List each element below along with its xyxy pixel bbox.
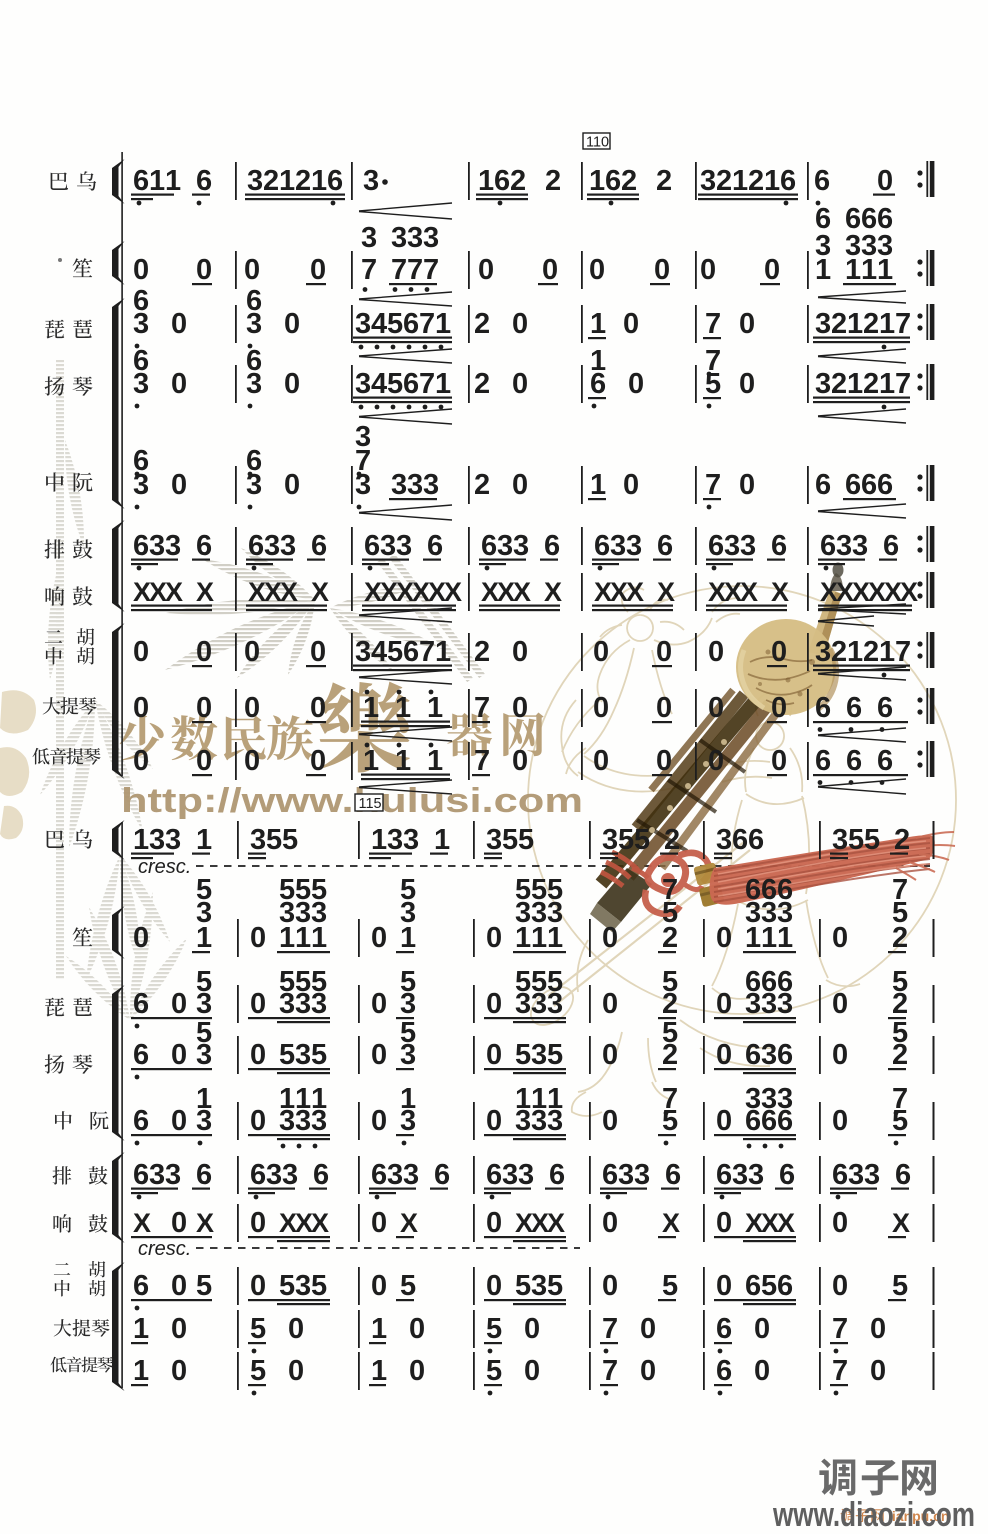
svg-text:5: 5 xyxy=(662,1017,678,1049)
svg-text:3: 3 xyxy=(815,636,831,668)
svg-text:3: 3 xyxy=(777,897,793,929)
svg-text:5: 5 xyxy=(279,966,295,998)
svg-text:5: 5 xyxy=(196,966,212,998)
svg-text:1: 1 xyxy=(400,1083,416,1115)
svg-text:5: 5 xyxy=(311,1270,327,1302)
svg-text:0: 0 xyxy=(640,1313,656,1345)
svg-text:0: 0 xyxy=(832,1207,848,1239)
svg-text:5: 5 xyxy=(547,1039,563,1071)
svg-text:7: 7 xyxy=(391,254,407,286)
svg-text:3: 3 xyxy=(852,530,868,562)
svg-text:3: 3 xyxy=(391,222,407,254)
svg-text:6: 6 xyxy=(594,530,610,562)
svg-text:1: 1 xyxy=(732,165,748,197)
svg-text:1: 1 xyxy=(531,1083,547,1115)
svg-text:6: 6 xyxy=(665,1159,681,1191)
svg-text:3: 3 xyxy=(877,230,893,262)
svg-text:0: 0 xyxy=(371,988,387,1020)
svg-text:3: 3 xyxy=(280,530,296,562)
svg-text:6: 6 xyxy=(832,1159,848,1191)
svg-text:0: 0 xyxy=(656,636,672,668)
svg-text:5: 5 xyxy=(547,966,563,998)
svg-text:6: 6 xyxy=(544,530,560,562)
svg-text:0: 0 xyxy=(196,745,212,777)
svg-text:0: 0 xyxy=(133,636,149,668)
svg-text:0: 0 xyxy=(512,636,528,668)
svg-text:6: 6 xyxy=(313,1159,329,1191)
svg-text:5: 5 xyxy=(295,966,311,998)
svg-text:0: 0 xyxy=(524,1313,540,1345)
svg-text:5: 5 xyxy=(531,966,547,998)
svg-text:3: 3 xyxy=(610,530,626,562)
svg-text:115: 115 xyxy=(359,796,382,812)
svg-text:0: 0 xyxy=(716,1105,732,1137)
svg-text:2: 2 xyxy=(748,165,764,197)
svg-text:7: 7 xyxy=(895,308,911,340)
svg-text:2: 2 xyxy=(831,636,847,668)
svg-text:6: 6 xyxy=(133,1270,149,1302)
svg-text:3: 3 xyxy=(740,530,756,562)
svg-text:1: 1 xyxy=(590,345,606,377)
svg-text:3: 3 xyxy=(279,897,295,929)
svg-text:1: 1 xyxy=(133,1355,149,1387)
svg-text:6: 6 xyxy=(716,1159,732,1191)
svg-text:1: 1 xyxy=(363,745,379,777)
svg-text:5: 5 xyxy=(848,824,864,856)
svg-text:5: 5 xyxy=(196,1017,212,1049)
svg-text:3: 3 xyxy=(815,308,831,340)
svg-text:6: 6 xyxy=(549,1159,565,1191)
svg-text:7: 7 xyxy=(419,308,435,340)
svg-text:0: 0 xyxy=(656,745,672,777)
svg-text:0: 0 xyxy=(593,636,609,668)
svg-text:2: 2 xyxy=(716,165,732,197)
svg-text:0: 0 xyxy=(486,1105,502,1137)
svg-text:0: 0 xyxy=(171,308,187,340)
svg-text:3: 3 xyxy=(355,636,371,668)
svg-text:1: 1 xyxy=(133,824,149,856)
svg-text:5: 5 xyxy=(892,897,908,929)
svg-text:3: 3 xyxy=(815,230,831,262)
svg-text:5: 5 xyxy=(864,824,880,856)
svg-text:3: 3 xyxy=(165,530,181,562)
svg-text:1: 1 xyxy=(427,745,443,777)
svg-text:6: 6 xyxy=(745,966,761,998)
svg-text:2: 2 xyxy=(474,469,490,501)
svg-text:1: 1 xyxy=(879,368,895,400)
svg-text:3: 3 xyxy=(745,1083,761,1115)
svg-text:0: 0 xyxy=(771,636,787,668)
svg-text:3: 3 xyxy=(165,824,181,856)
svg-text:3: 3 xyxy=(380,530,396,562)
svg-text:3: 3 xyxy=(363,165,379,197)
svg-text:6: 6 xyxy=(196,530,212,562)
svg-text:3: 3 xyxy=(423,469,439,501)
svg-text:0: 0 xyxy=(250,1105,266,1137)
svg-text:4: 4 xyxy=(371,368,387,400)
svg-text:2: 2 xyxy=(863,368,879,400)
svg-text:X: X xyxy=(311,577,329,607)
svg-text:4: 4 xyxy=(371,636,387,668)
svg-text:5: 5 xyxy=(515,966,531,998)
svg-text:5: 5 xyxy=(196,1270,212,1302)
svg-text:0: 0 xyxy=(171,1207,187,1239)
svg-text:0: 0 xyxy=(870,1355,886,1387)
svg-text:3: 3 xyxy=(391,469,407,501)
svg-text:6: 6 xyxy=(716,1355,732,1387)
svg-text:1: 1 xyxy=(590,469,606,501)
svg-text:0: 0 xyxy=(171,1270,187,1302)
svg-text:cresc.: cresc. xyxy=(138,1238,191,1260)
svg-text:6: 6 xyxy=(133,1159,149,1191)
svg-text:7: 7 xyxy=(602,1313,618,1345)
svg-text:7: 7 xyxy=(474,745,490,777)
svg-text:6: 6 xyxy=(250,1159,266,1191)
svg-text:0: 0 xyxy=(602,922,618,954)
svg-text:1: 1 xyxy=(547,1083,563,1115)
svg-text:3: 3 xyxy=(400,897,416,929)
svg-text:3: 3 xyxy=(387,824,403,856)
svg-text:6: 6 xyxy=(133,1039,149,1071)
svg-text:6: 6 xyxy=(246,345,262,377)
svg-text:0: 0 xyxy=(877,165,893,197)
svg-text:3: 3 xyxy=(634,1159,650,1191)
svg-text:4: 4 xyxy=(371,308,387,340)
svg-text:X: X xyxy=(900,577,918,607)
svg-text:6: 6 xyxy=(877,692,893,724)
svg-text:3: 3 xyxy=(518,1159,534,1191)
svg-text:1: 1 xyxy=(196,1083,212,1115)
svg-text:0: 0 xyxy=(656,692,672,724)
svg-text:6: 6 xyxy=(327,165,343,197)
svg-text:6: 6 xyxy=(403,368,419,400)
svg-text:1: 1 xyxy=(879,308,895,340)
svg-text:0: 0 xyxy=(589,254,605,286)
svg-text:X: X xyxy=(662,1208,680,1238)
svg-text:0: 0 xyxy=(593,692,609,724)
svg-text:6: 6 xyxy=(371,1159,387,1191)
svg-text:1: 1 xyxy=(435,368,451,400)
svg-text:1: 1 xyxy=(847,308,863,340)
svg-text:0: 0 xyxy=(310,636,326,668)
svg-text:3: 3 xyxy=(149,530,165,562)
svg-text:5: 5 xyxy=(387,636,403,668)
svg-text:6: 6 xyxy=(133,345,149,377)
svg-text:1: 1 xyxy=(363,692,379,724)
svg-text:5: 5 xyxy=(387,368,403,400)
svg-text:3: 3 xyxy=(700,165,716,197)
svg-text:1: 1 xyxy=(395,692,411,724)
svg-text:0: 0 xyxy=(764,254,780,286)
svg-text:6: 6 xyxy=(761,966,777,998)
svg-text:6: 6 xyxy=(883,530,899,562)
svg-text:X: X xyxy=(133,1208,151,1238)
svg-text:3: 3 xyxy=(832,824,848,856)
svg-text:3: 3 xyxy=(815,368,831,400)
svg-text:0: 0 xyxy=(171,988,187,1020)
svg-text:7: 7 xyxy=(705,308,721,340)
svg-text:5: 5 xyxy=(311,966,327,998)
svg-text:5: 5 xyxy=(486,1355,502,1387)
svg-text:5: 5 xyxy=(761,1270,777,1302)
svg-text:2: 2 xyxy=(664,824,680,856)
svg-text:2: 2 xyxy=(831,308,847,340)
svg-text:6: 6 xyxy=(133,285,149,317)
svg-text:6: 6 xyxy=(602,1159,618,1191)
svg-text:0: 0 xyxy=(171,469,187,501)
svg-text:3: 3 xyxy=(848,1159,864,1191)
svg-text:6: 6 xyxy=(481,530,497,562)
svg-text:3: 3 xyxy=(403,1159,419,1191)
svg-text:0: 0 xyxy=(171,1313,187,1345)
svg-text:0: 0 xyxy=(832,988,848,1020)
svg-text:0: 0 xyxy=(602,1207,618,1239)
svg-text:0: 0 xyxy=(478,254,494,286)
svg-text:0: 0 xyxy=(250,1270,266,1302)
svg-text:0: 0 xyxy=(832,1039,848,1071)
svg-text:2: 2 xyxy=(545,165,561,197)
svg-text:0: 0 xyxy=(371,922,387,954)
svg-text:5: 5 xyxy=(515,1270,531,1302)
svg-text:0: 0 xyxy=(623,308,639,340)
svg-text:6: 6 xyxy=(777,966,793,998)
svg-text:7: 7 xyxy=(705,469,721,501)
svg-text:5: 5 xyxy=(250,1355,266,1387)
svg-text:3: 3 xyxy=(845,230,861,262)
svg-text:0: 0 xyxy=(371,1039,387,1071)
svg-text:6: 6 xyxy=(133,165,149,197)
svg-text:6: 6 xyxy=(732,824,748,856)
svg-text:3: 3 xyxy=(407,222,423,254)
svg-text:1: 1 xyxy=(435,636,451,668)
svg-text:2: 2 xyxy=(863,636,879,668)
svg-text:0: 0 xyxy=(250,1207,266,1239)
svg-text:0: 0 xyxy=(171,1355,187,1387)
svg-text:3: 3 xyxy=(497,530,513,562)
svg-text:cresc.: cresc. xyxy=(138,856,191,878)
svg-text:3: 3 xyxy=(777,1083,793,1115)
svg-text:0: 0 xyxy=(250,922,266,954)
svg-text:3: 3 xyxy=(602,824,618,856)
svg-text:3: 3 xyxy=(250,824,266,856)
svg-text:0: 0 xyxy=(512,368,528,400)
svg-text:5: 5 xyxy=(279,1270,295,1302)
svg-text:6: 6 xyxy=(248,530,264,562)
svg-text:5: 5 xyxy=(634,824,650,856)
svg-text:1: 1 xyxy=(395,745,411,777)
svg-text:5: 5 xyxy=(892,1017,908,1049)
svg-text:3: 3 xyxy=(531,897,547,929)
svg-text:0: 0 xyxy=(196,692,212,724)
svg-text:0: 0 xyxy=(171,1105,187,1137)
svg-text:3: 3 xyxy=(282,1159,298,1191)
svg-text:3: 3 xyxy=(716,824,732,856)
svg-text:7: 7 xyxy=(895,636,911,668)
svg-text:3: 3 xyxy=(861,230,877,262)
svg-text:1: 1 xyxy=(295,1083,311,1115)
svg-text:0: 0 xyxy=(602,988,618,1020)
svg-text:7: 7 xyxy=(419,636,435,668)
svg-text:1: 1 xyxy=(590,308,606,340)
svg-text:0: 0 xyxy=(409,1313,425,1345)
svg-text:0: 0 xyxy=(133,692,149,724)
svg-text:1: 1 xyxy=(879,636,895,668)
svg-text:6: 6 xyxy=(846,745,862,777)
svg-text:3: 3 xyxy=(355,308,371,340)
svg-text:7: 7 xyxy=(662,1083,678,1115)
svg-text:6: 6 xyxy=(815,692,831,724)
svg-text:6: 6 xyxy=(771,530,787,562)
svg-text:0: 0 xyxy=(602,1039,618,1071)
svg-text:0: 0 xyxy=(133,922,149,954)
svg-text:3: 3 xyxy=(745,897,761,929)
svg-text:1: 1 xyxy=(371,1313,387,1345)
svg-text:X: X xyxy=(657,577,675,607)
svg-text:5: 5 xyxy=(662,1270,678,1302)
svg-text:X: X xyxy=(311,1208,329,1238)
svg-text:0: 0 xyxy=(171,1039,187,1071)
svg-text:6: 6 xyxy=(777,1270,793,1302)
svg-text:7: 7 xyxy=(832,1355,848,1387)
svg-text:1: 1 xyxy=(427,692,443,724)
svg-text:7: 7 xyxy=(419,368,435,400)
svg-text:6: 6 xyxy=(845,469,861,501)
svg-text:6: 6 xyxy=(196,165,212,197)
svg-text:3: 3 xyxy=(864,1159,880,1191)
svg-text:5: 5 xyxy=(400,1017,416,1049)
svg-text:0: 0 xyxy=(524,1355,540,1387)
svg-text:0: 0 xyxy=(708,745,724,777)
svg-text:1: 1 xyxy=(133,1313,149,1345)
svg-text:0: 0 xyxy=(486,1270,502,1302)
svg-text:X: X xyxy=(444,577,462,607)
svg-text:0: 0 xyxy=(244,745,260,777)
svg-text:0: 0 xyxy=(870,1313,886,1345)
svg-text:6: 6 xyxy=(494,165,510,197)
svg-text:1: 1 xyxy=(149,165,165,197)
svg-text:0: 0 xyxy=(512,469,528,501)
svg-text:0: 0 xyxy=(310,745,326,777)
svg-text:6: 6 xyxy=(748,824,764,856)
svg-text:0: 0 xyxy=(284,469,300,501)
svg-text:1: 1 xyxy=(371,1355,387,1387)
svg-text:5: 5 xyxy=(387,308,403,340)
svg-text:0: 0 xyxy=(371,1207,387,1239)
svg-text:6: 6 xyxy=(434,1159,450,1191)
svg-text:3: 3 xyxy=(486,824,502,856)
svg-text:2: 2 xyxy=(894,824,910,856)
svg-text:3: 3 xyxy=(266,1159,282,1191)
svg-text:0: 0 xyxy=(133,254,149,286)
svg-text:0: 0 xyxy=(832,1105,848,1137)
svg-text:3: 3 xyxy=(513,530,529,562)
svg-text:0: 0 xyxy=(654,254,670,286)
svg-text:5: 5 xyxy=(892,966,908,998)
svg-text:3: 3 xyxy=(761,897,777,929)
svg-text:3: 3 xyxy=(149,1159,165,1191)
svg-text:3: 3 xyxy=(626,530,642,562)
svg-text:www.diaozi.com: www.diaozi.com xyxy=(772,1496,975,1534)
svg-text:3: 3 xyxy=(361,222,377,254)
svg-text:0: 0 xyxy=(716,1039,732,1071)
svg-text:0: 0 xyxy=(832,1270,848,1302)
svg-text:2: 2 xyxy=(295,165,311,197)
svg-text:7: 7 xyxy=(407,254,423,286)
svg-text:0: 0 xyxy=(602,1105,618,1137)
svg-text:3: 3 xyxy=(149,824,165,856)
svg-text:7: 7 xyxy=(361,254,377,286)
svg-text:3: 3 xyxy=(761,1039,777,1071)
svg-text:0: 0 xyxy=(244,692,260,724)
svg-text:X: X xyxy=(400,1208,418,1238)
svg-text:0: 0 xyxy=(593,745,609,777)
svg-text:0: 0 xyxy=(716,922,732,954)
svg-text:0: 0 xyxy=(244,254,260,286)
svg-text:2: 2 xyxy=(656,165,672,197)
svg-text:7: 7 xyxy=(895,368,911,400)
svg-text:5: 5 xyxy=(486,1313,502,1345)
svg-text:3: 3 xyxy=(724,530,740,562)
svg-text:1: 1 xyxy=(434,824,450,856)
svg-text:0: 0 xyxy=(716,1270,732,1302)
svg-text:5: 5 xyxy=(282,824,298,856)
svg-text:5: 5 xyxy=(515,1039,531,1071)
svg-text:6: 6 xyxy=(779,1159,795,1191)
svg-text:5: 5 xyxy=(266,824,282,856)
svg-text:3: 3 xyxy=(403,824,419,856)
svg-text:X: X xyxy=(771,577,789,607)
svg-text:1: 1 xyxy=(311,1083,327,1115)
svg-text:2: 2 xyxy=(621,165,637,197)
svg-text:0: 0 xyxy=(628,368,644,400)
svg-text:6: 6 xyxy=(196,1159,212,1191)
svg-text:110: 110 xyxy=(586,135,609,151)
svg-text:6: 6 xyxy=(815,469,831,501)
svg-text:0: 0 xyxy=(623,469,639,501)
svg-text:0: 0 xyxy=(512,308,528,340)
svg-text:0: 0 xyxy=(371,1270,387,1302)
svg-text:0: 0 xyxy=(832,922,848,954)
svg-text:3: 3 xyxy=(515,897,531,929)
svg-text:X: X xyxy=(196,1208,214,1238)
svg-text:3: 3 xyxy=(531,1039,547,1071)
svg-text:1: 1 xyxy=(371,824,387,856)
svg-text:1: 1 xyxy=(279,165,295,197)
svg-text:1: 1 xyxy=(764,165,780,197)
svg-text:6: 6 xyxy=(814,165,830,197)
svg-text:5: 5 xyxy=(518,824,534,856)
svg-text:3: 3 xyxy=(355,368,371,400)
svg-text:5: 5 xyxy=(279,1039,295,1071)
svg-text:1: 1 xyxy=(196,824,212,856)
svg-text:3: 3 xyxy=(748,1159,764,1191)
svg-text:6: 6 xyxy=(403,308,419,340)
svg-text:6: 6 xyxy=(846,692,862,724)
svg-text:0: 0 xyxy=(716,1207,732,1239)
svg-text:6: 6 xyxy=(777,1039,793,1071)
svg-text:6: 6 xyxy=(427,530,443,562)
svg-text:0: 0 xyxy=(708,692,724,724)
svg-text:0: 0 xyxy=(486,922,502,954)
svg-text:6: 6 xyxy=(364,530,380,562)
svg-text:http://www.hulusi.com: http://www.hulusi.com xyxy=(121,782,583,820)
svg-text:0: 0 xyxy=(754,1355,770,1387)
svg-text:3: 3 xyxy=(165,1159,181,1191)
svg-text:0: 0 xyxy=(196,254,212,286)
svg-text:X: X xyxy=(544,577,562,607)
svg-text:X: X xyxy=(777,1208,795,1238)
svg-text:0: 0 xyxy=(700,254,716,286)
